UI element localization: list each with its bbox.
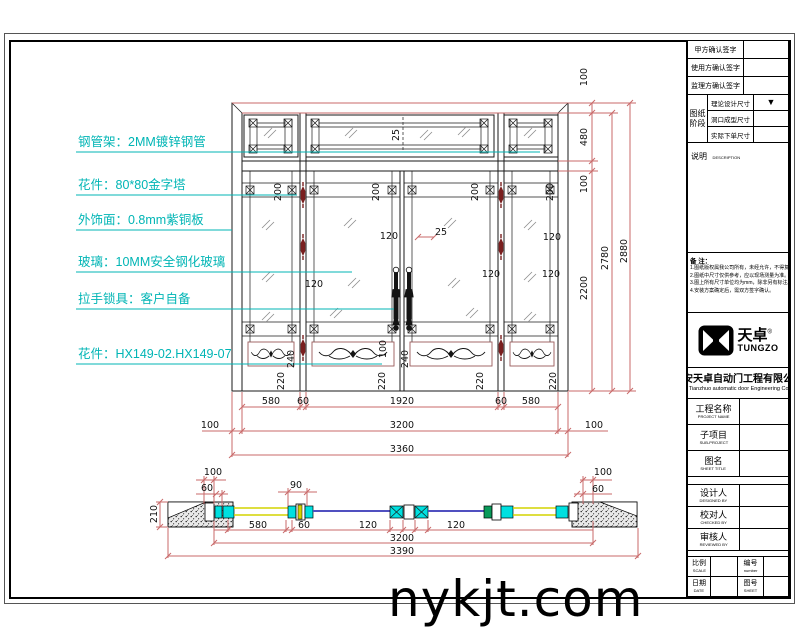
stage-row: 实际下单尺寸 xyxy=(708,127,754,143)
sign-row-value[interactable] xyxy=(744,59,788,77)
logo-name-cn: 天卓 xyxy=(738,327,768,344)
dim-label: 120 xyxy=(305,279,323,290)
dim-label: 2880 xyxy=(619,239,630,263)
door-drawing-svg: 钢管架：2MM镀锌钢管花件：80*80金字塔外饰面：0.8mm紫铜板玻璃：10M… xyxy=(0,0,800,640)
dim-label: 1920 xyxy=(390,396,414,407)
watermark: nykjt.com xyxy=(388,570,643,628)
dim-label: 60 xyxy=(201,483,213,494)
flower-ornament-icon xyxy=(417,348,485,359)
dim-label: 100 xyxy=(594,467,612,478)
dim-label: 3360 xyxy=(390,444,414,455)
annotation-text: 外饰面：0.8mm紫铜板 xyxy=(78,212,204,227)
dim-label: 220 xyxy=(475,372,486,390)
description-box: 说明 DESCRIPTION xyxy=(688,143,788,253)
triangle-marker-icon: ▼ xyxy=(767,98,776,107)
sign-row-label: 使用方确认签字 xyxy=(688,59,744,77)
person-label: 审核人 REVIEWED BY xyxy=(688,529,740,551)
dim-label: 240 xyxy=(400,350,411,368)
field-value[interactable] xyxy=(740,451,788,477)
date-label: 日期 DATE xyxy=(688,577,711,596)
company-box: 西安天卓自动门工程有限公司 Xi'an Tianzhuo automatic d… xyxy=(688,368,788,399)
company-name-en: Xi'an Tianzhuo automatic door Engineerin… xyxy=(688,386,788,392)
stage-marker: ▼ xyxy=(754,95,788,111)
notes-box: 备 注： 1.图纸版权属我公司所有，未经允许，不得复制。 2.图纸中尺寸仅供参考… xyxy=(688,253,788,313)
dim-label: 200 xyxy=(545,183,556,201)
registered-mark: ® xyxy=(768,329,772,335)
dim-label: 2200 xyxy=(579,276,590,300)
dim-label: 120 xyxy=(447,520,465,531)
person-value[interactable] xyxy=(740,507,788,529)
field-label: 图名 SHEET TITLE xyxy=(688,451,740,477)
scale-label: 比例 SCALE xyxy=(688,557,711,577)
field-value[interactable] xyxy=(740,425,788,451)
dim-label: 580 xyxy=(522,396,540,407)
company-name-cn: 西安天卓自动门工程有限公司 xyxy=(688,374,788,386)
dim-label: 3390 xyxy=(390,546,414,557)
dim-label: 100 xyxy=(579,68,590,86)
scale-value[interactable] xyxy=(711,557,738,577)
cad-application-canvas: 钢管架：2MM镀锌钢管花件：80*80金字塔外饰面：0.8mm紫铜板玻璃：10M… xyxy=(0,0,800,640)
dim-label: 60 xyxy=(297,396,309,407)
dim-label: 200 xyxy=(371,183,382,201)
dim-label: 220 xyxy=(276,372,287,390)
date-value[interactable] xyxy=(711,577,738,596)
sign-row-label: 甲方确认签字 xyxy=(688,41,744,59)
dim-label: 210 xyxy=(149,505,160,523)
stage-row: 洞口成型尺寸 xyxy=(708,111,754,127)
dim-label: 100 xyxy=(201,420,219,431)
dim-label: 240 xyxy=(286,350,297,368)
annotation-text: 花件：HX149-02.HX149-07 xyxy=(78,346,232,361)
dim-label: 120 xyxy=(542,269,560,280)
dim-label: 480 xyxy=(579,128,590,146)
number-label: 编号 number xyxy=(738,557,764,577)
dim-label: 90 xyxy=(290,480,302,491)
dim-label: 220 xyxy=(548,372,559,390)
dim-label: 580 xyxy=(262,396,280,407)
stage-label: 图纸 阶段 xyxy=(688,95,708,143)
person-label: 设计人 DESIGNED BY xyxy=(688,485,740,507)
sign-row-label: 监理方确认签字 xyxy=(688,77,744,95)
dim-label: 100 xyxy=(378,340,389,358)
description-label: 说明 xyxy=(691,152,707,161)
person-label: 校对人 CHECKED BY xyxy=(688,507,740,529)
dim-label: 3200 xyxy=(390,533,414,544)
flower-ornament-icon xyxy=(319,348,387,359)
field-value[interactable] xyxy=(740,399,788,425)
sheetno-value[interactable] xyxy=(764,577,788,596)
person-value[interactable] xyxy=(740,529,788,551)
logo-box: 天卓® TUNGZO xyxy=(688,313,788,368)
dim-label: 120 xyxy=(380,231,398,242)
flower-ornament-icon xyxy=(513,349,551,358)
plan-frame-sections xyxy=(205,503,578,521)
tungzo-logo-icon xyxy=(698,325,734,356)
sheetno-label: 图号 SHEET xyxy=(738,577,764,596)
number-value[interactable] xyxy=(764,557,788,577)
dim-label: 580 xyxy=(249,520,267,531)
description-label-en: DESCRIPTION xyxy=(713,155,741,160)
dim-label: 100 xyxy=(204,467,222,478)
sign-row-value[interactable] xyxy=(744,77,788,95)
dim-label: 25 xyxy=(435,227,447,238)
dim-label: 120 xyxy=(482,269,500,280)
stage-row: 理论设计尺寸 xyxy=(708,95,754,111)
door-handle-icon xyxy=(392,267,400,330)
dim-label: 220 xyxy=(377,372,388,390)
dim-label: 2780 xyxy=(600,246,611,270)
flower-ornament-icon xyxy=(251,349,290,358)
field-label: 工程名称 PROJECT NAME xyxy=(688,399,740,425)
dim-label: 200 xyxy=(470,183,481,201)
note-line: 2.图纸中尺寸仅供参考，应以现场测量为准。 xyxy=(690,273,786,281)
note-line: 3.图上所有尺寸单位均为mm，除非另有标注。 xyxy=(690,280,786,288)
spacer-row xyxy=(688,477,788,485)
dim-label: 60 xyxy=(298,520,310,531)
dim-label: 60 xyxy=(592,484,604,495)
person-value[interactable] xyxy=(740,485,788,507)
stage-value[interactable] xyxy=(754,127,788,143)
note-line: 4.安装方案确定后，需双方签字确认。 xyxy=(690,288,786,296)
sign-row-value[interactable] xyxy=(744,41,788,59)
dim-label: 100 xyxy=(585,420,603,431)
notes-title: 备 注： xyxy=(690,255,786,265)
dim-label: 200 xyxy=(273,183,284,201)
title-block: 甲方确认签字 使用方确认签字 监理方确认签字 图纸 阶段 理论设计尺寸 ▼ 洞口… xyxy=(686,40,789,597)
dim-label: 120 xyxy=(543,232,561,243)
dim-label: 60 xyxy=(495,396,507,407)
field-label: 子项目 SUB-PROJECT xyxy=(688,425,740,451)
logo-name-en: TUNGZO xyxy=(738,344,779,353)
annotation-text: 拉手锁具：客户自备 xyxy=(78,291,191,306)
annotation-text: 钢管架：2MM镀锌钢管 xyxy=(78,134,206,149)
dim-label: 120 xyxy=(359,520,377,531)
dim-label: 25 xyxy=(391,129,402,141)
annotation-labels: 钢管架：2MM镀锌钢管花件：80*80金字塔外饰面：0.8mm紫铜板玻璃：10M… xyxy=(76,134,540,364)
dim-label: 100 xyxy=(579,175,590,193)
annotation-text: 花件：80*80金字塔 xyxy=(78,177,186,192)
note-line: 1.图纸版权属我公司所有，未经允许，不得复制。 xyxy=(690,265,786,273)
annotation-text: 玻璃：10MM安全钢化玻璃 xyxy=(78,254,225,269)
dim-label: 3200 xyxy=(390,420,414,431)
stage-value[interactable] xyxy=(754,111,788,127)
